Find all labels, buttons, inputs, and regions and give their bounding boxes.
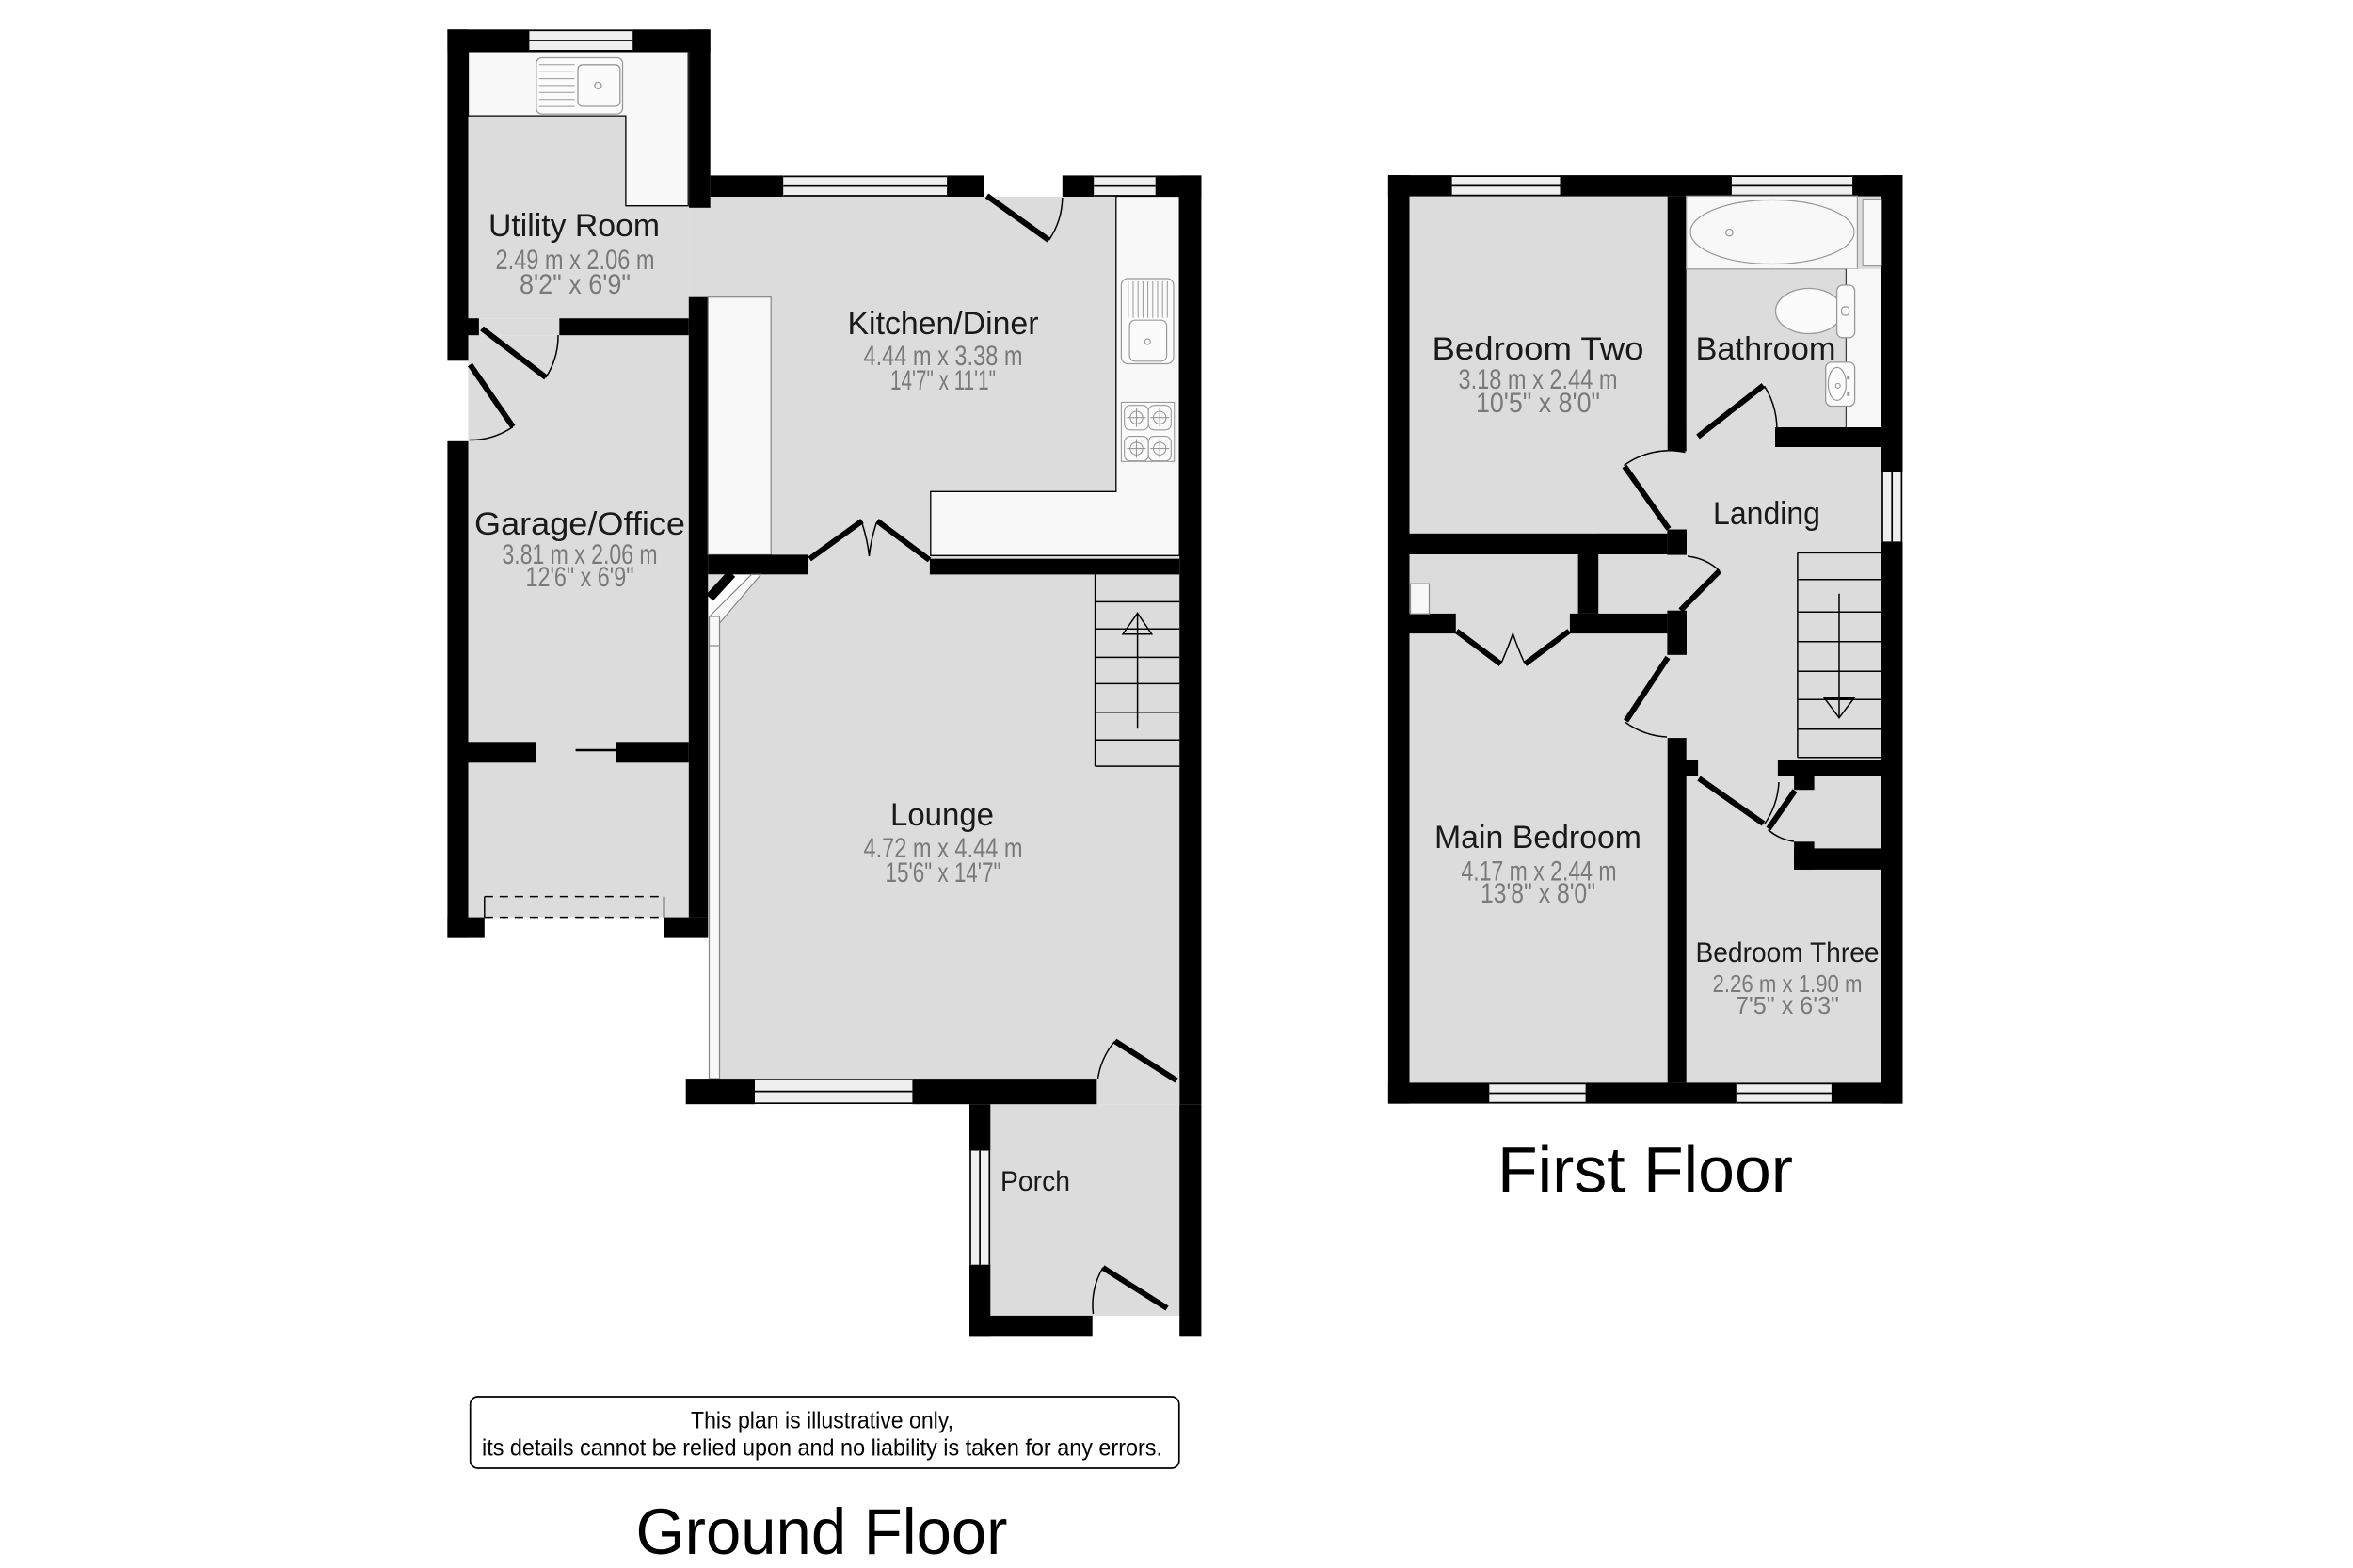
svg-text:Kitchen/Diner: Kitchen/Diner — [848, 306, 1039, 342]
svg-text:Bathroom: Bathroom — [1696, 331, 1836, 367]
svg-text:Bedroom Two: Bedroom Two — [1433, 331, 1644, 367]
svg-text:Landing: Landing — [1713, 496, 1820, 532]
svg-text:15'6" x 14'7": 15'6" x 14'7" — [886, 857, 1001, 888]
svg-text:7'5" x 6'3": 7'5" x 6'3" — [1736, 991, 1839, 1019]
svg-text:Garage/Office: Garage/Office — [474, 506, 685, 542]
svg-text:12'6" x 6'9": 12'6" x 6'9" — [526, 562, 634, 593]
svg-text:10'5" x 8'0": 10'5" x 8'0" — [1476, 388, 1600, 419]
svg-text:14'7" x 11'1": 14'7" x 11'1" — [890, 365, 996, 396]
svg-text:13'8" x 8'0": 13'8" x 8'0" — [1481, 878, 1595, 909]
svg-text:Utility Room: Utility Room — [488, 208, 660, 244]
svg-text:Ground Floor: Ground Floor — [636, 1496, 1008, 1568]
svg-text:Porch: Porch — [1000, 1166, 1070, 1197]
svg-text:its details cannot be relied u: its details cannot be relied upon and no… — [482, 1435, 1162, 1462]
svg-text:8'2" x 6'9": 8'2" x 6'9" — [520, 269, 631, 300]
svg-text:Lounge: Lounge — [890, 797, 994, 833]
svg-text:First Floor: First Floor — [1497, 1134, 1793, 1207]
svg-text:Bedroom Three: Bedroom Three — [1696, 937, 1880, 968]
svg-text:This plan is illustrative only: This plan is illustrative only, — [691, 1407, 953, 1433]
svg-text:Main Bedroom: Main Bedroom — [1434, 820, 1641, 856]
